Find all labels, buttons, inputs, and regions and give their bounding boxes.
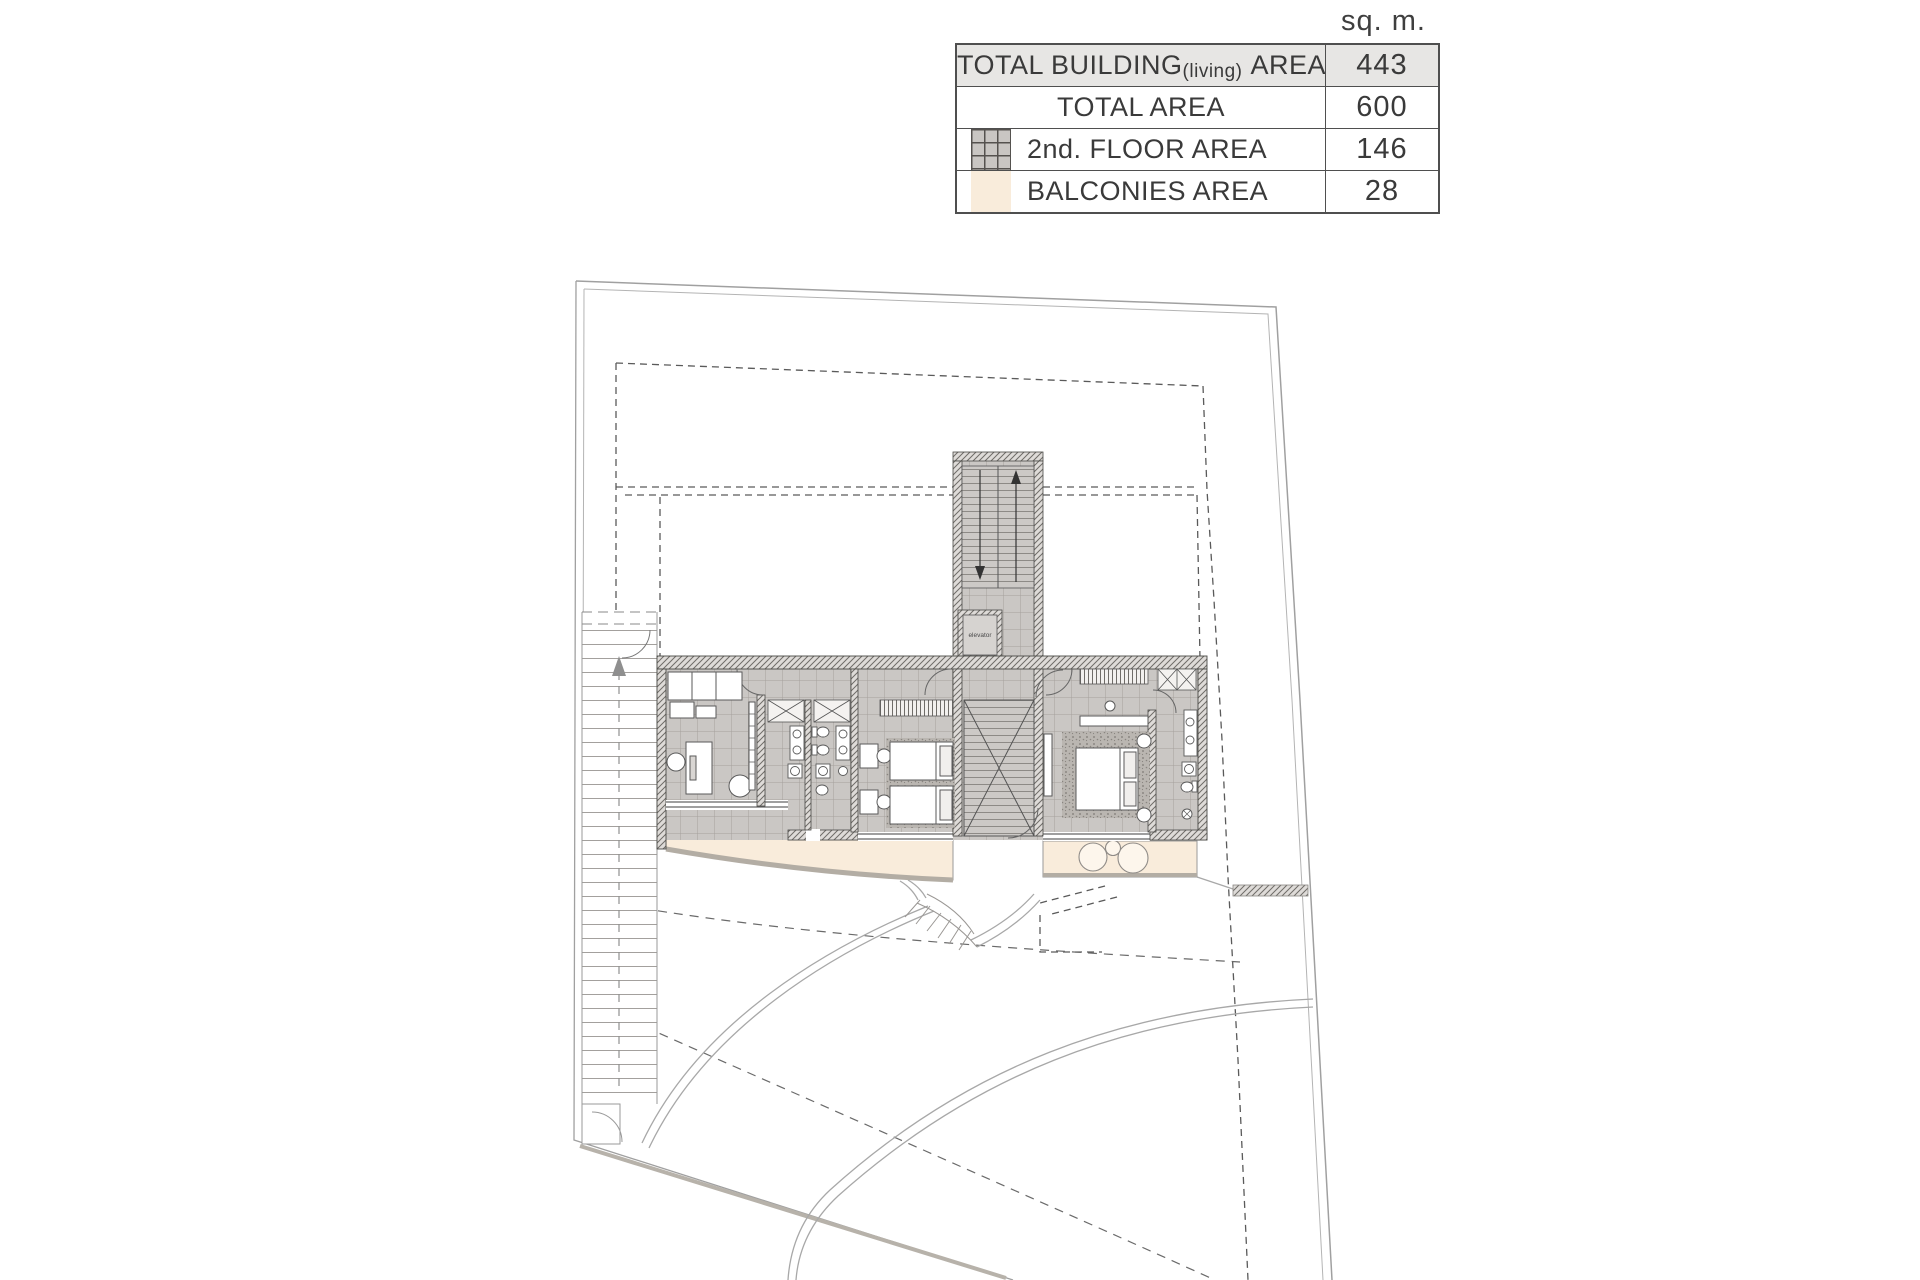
floor-area-swatch (971, 129, 1011, 170)
staircase-shaft: elevator (953, 452, 1043, 669)
label-small: (living) (1183, 61, 1243, 86)
row-value: 146 (1325, 129, 1438, 170)
bedside-table (1137, 808, 1151, 822)
label-suffix: AREA (1251, 50, 1326, 81)
row-label: 2nd. FLOOR AREA (957, 129, 1325, 170)
row-label: TOTAL AREA (957, 87, 1325, 128)
dresser (1080, 716, 1148, 726)
ceiling-lamp (1105, 701, 1115, 711)
wall-right (1198, 669, 1207, 840)
table-row: TOTAL AREA 600 (957, 87, 1438, 129)
desk (860, 744, 878, 768)
retaining-wall (580, 1146, 1006, 1278)
bedside-table (1137, 734, 1151, 748)
elevator: elevator (958, 610, 1002, 660)
wall-top (657, 656, 1207, 669)
path-retaining-strip (1233, 885, 1308, 896)
table-row: 2nd. FLOOR AREA 146 (957, 129, 1438, 171)
radiator (749, 702, 755, 790)
label-main: TOTAL BUILDING (957, 50, 1183, 81)
row-value: 443 (1325, 45, 1438, 86)
outdoor-stairs (582, 612, 657, 1144)
table-row: BALCONIES AREA 28 (957, 171, 1438, 212)
row-value: 28 (1325, 171, 1438, 212)
elevator-label: elevator (968, 632, 992, 639)
driveway-paths (642, 877, 1313, 1280)
round-table (729, 775, 751, 797)
table-row: TOTAL BUILDING(living)AREA 443 (957, 45, 1438, 87)
row-value: 600 (1325, 87, 1438, 128)
driveway-dashed-paths (595, 900, 1240, 1280)
shaft-stairs (962, 466, 1034, 588)
balcony-area-swatch (971, 171, 1011, 212)
building: elevator (657, 452, 1207, 849)
exterior-fan-steps (905, 894, 977, 950)
desk (860, 790, 878, 814)
area-table: TOTAL BUILDING(living)AREA 443 TOTAL ARE… (955, 43, 1440, 214)
label-main: 2nd. FLOOR AREA (1011, 134, 1267, 165)
chair (877, 795, 891, 809)
desk-chair (667, 753, 685, 771)
row-label: TOTAL BUILDING(living)AREA (957, 45, 1325, 86)
floor-plan-sheet: elevator (0, 0, 1920, 1280)
label-main: BALCONIES AREA (1011, 176, 1268, 207)
chair (877, 749, 891, 763)
row-label: BALCONIES AREA (957, 171, 1325, 212)
wall-left (657, 669, 666, 849)
unit-header: sq. m. (1327, 5, 1440, 39)
internal-stair (964, 700, 1034, 836)
side-cabinet (1044, 734, 1052, 796)
stair-landing (582, 1104, 620, 1144)
